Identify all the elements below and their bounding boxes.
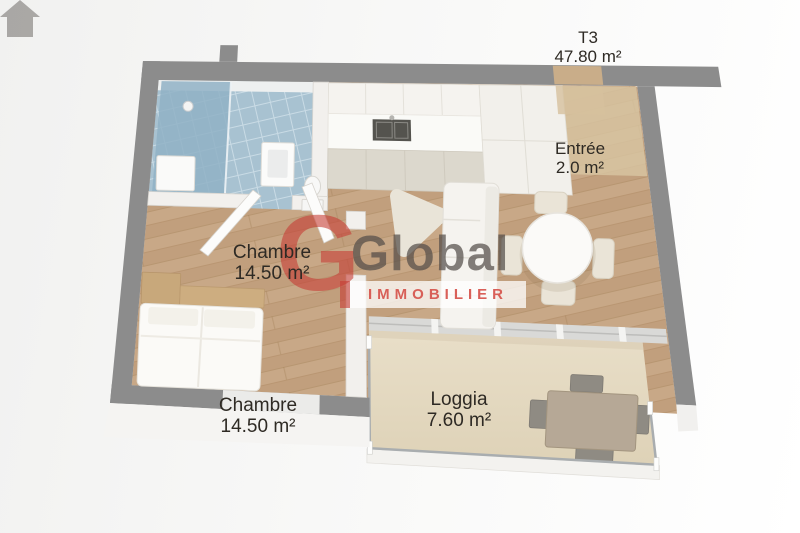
loggia-terrace: [367, 316, 668, 479]
bedroom-furniture: [137, 272, 265, 391]
floor-plan-canvas: G Global IMMOBILIER T3 47.80 m² Entrée 2…: [0, 0, 800, 533]
floor-plan-3d: [0, 0, 800, 533]
